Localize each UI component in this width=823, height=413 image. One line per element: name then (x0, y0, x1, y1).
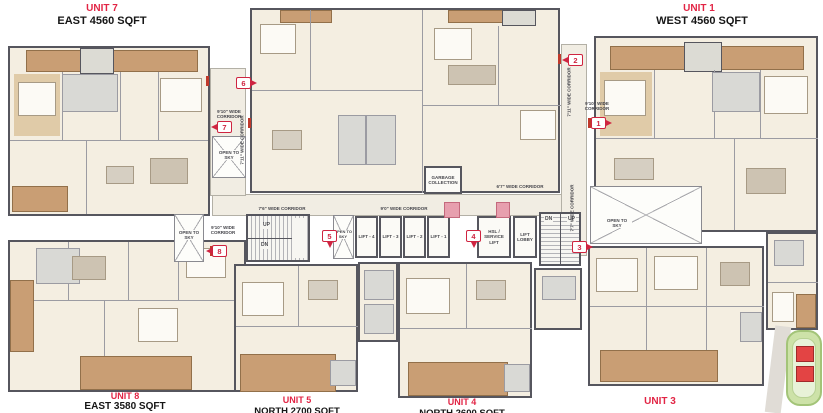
floor-plan: GARBAGE COLLECTION LIFT - 4 LIFT - 3 LIF… (0, 0, 823, 413)
arrow-right-icon (606, 120, 612, 126)
duct-block (684, 42, 722, 72)
wall-partition (104, 300, 105, 356)
arrow-down-icon (471, 242, 477, 248)
corridor-label: 7'6" WIDE CORRIDOR (259, 206, 306, 211)
bathroom (330, 360, 356, 386)
arrow-down-icon (327, 242, 333, 248)
unit3-plan (588, 246, 764, 386)
lift-3-label: LIFT - 3 (383, 234, 399, 239)
unit5-plan (234, 264, 358, 392)
wall-partition (590, 306, 764, 307)
unit1-area: WEST 4560 SQFT (656, 15, 748, 27)
service-duct (444, 202, 460, 218)
sofa (308, 280, 338, 300)
door-accent (558, 54, 561, 64)
lift-2-label: LIFT - 2 (407, 234, 423, 239)
bed (406, 278, 450, 314)
sofa (614, 158, 654, 180)
bed (138, 308, 178, 342)
wall-partition (120, 72, 121, 140)
unit8-plan (8, 240, 246, 392)
bed (242, 282, 284, 316)
deck-balcony (12, 186, 68, 212)
dining-table (746, 168, 786, 194)
entry-marker-7: 7 (211, 121, 232, 133)
unit7-name: UNIT 7 (86, 3, 118, 14)
wall-partition (654, 70, 655, 138)
unit7-area: EAST 4560 SQFT (57, 15, 146, 27)
garbage-room: GARBAGE COLLECTION (424, 166, 462, 194)
bathroom (712, 72, 760, 112)
bathroom (504, 364, 530, 392)
lift-1: LIFT - 1 (427, 216, 450, 258)
entry-marker-6-badge: 6 (236, 77, 251, 89)
wall-partition (760, 70, 761, 138)
stair-divider (248, 238, 292, 239)
wall-partition (706, 248, 707, 350)
door-accent (206, 76, 209, 86)
entry-marker-7-badge: 7 (217, 121, 232, 133)
mid-room-annex (534, 268, 582, 330)
bathroom (62, 74, 118, 112)
wall-partition (158, 72, 159, 140)
garbage-room-label: GARBAGE COLLECTION (426, 175, 460, 185)
corridor-label: 9'10" WIDE CORRIDOR (207, 225, 239, 235)
sofa (476, 280, 506, 300)
bed (160, 78, 202, 112)
deck-balcony (240, 354, 336, 392)
wall-partition (236, 326, 358, 327)
wall-partition (466, 264, 467, 328)
unit3-name: UNIT 3 (644, 396, 676, 407)
sofa (106, 166, 134, 184)
wall-partition (252, 90, 422, 91)
corridor-label: 6'7" WIDE CORRIDOR (497, 184, 544, 189)
deck-balcony (280, 10, 332, 23)
entry-marker-8: 8 (206, 245, 227, 257)
bed (18, 82, 56, 116)
stair-divider (560, 214, 561, 264)
entry-marker-4-badge: 4 (466, 230, 481, 242)
bed (596, 258, 638, 292)
wall-partition (734, 138, 735, 230)
open-to-sky-shaft (590, 186, 702, 244)
wall-partition (86, 140, 87, 214)
bathroom (740, 312, 762, 342)
key-plan-building (796, 366, 814, 382)
unit4-name: UNIT 4 (448, 397, 477, 407)
service-lift: HSL / SERVICE LIFT (477, 216, 511, 258)
corridor-main (212, 194, 580, 216)
bathroom (364, 304, 394, 334)
key-plan-building (796, 346, 814, 362)
wall-partition (128, 242, 129, 300)
bed (764, 76, 808, 114)
dining-table (150, 158, 188, 184)
deck-balcony (448, 10, 510, 23)
staircase-left: UP DN (246, 214, 310, 262)
wall-partition (400, 328, 532, 329)
unit4-area: NORTH 2600 SQFT (419, 408, 505, 413)
stair-up-label: UP (262, 223, 271, 229)
dining-table (720, 262, 750, 286)
stair-dn-label: DN (260, 243, 269, 249)
open-to-sky-label: OPEN TO SKY (178, 230, 200, 240)
unit7-plan (8, 46, 210, 216)
wall-partition (34, 300, 246, 301)
entry-marker-2-badge: 2 (568, 54, 583, 66)
stair-dn-label: DN (544, 217, 553, 223)
entry-marker-5-badge: 5 (322, 230, 337, 242)
wall-partition (422, 10, 423, 193)
service-duct (496, 202, 510, 218)
key-plan-site (786, 330, 822, 406)
lift-2: LIFT - 2 (403, 216, 426, 258)
entry-marker-5: 5 (322, 230, 337, 248)
open-to-sky-label: OPEN TO SKY (216, 150, 242, 160)
east-room-annex (766, 232, 818, 330)
deck-balcony (796, 294, 816, 328)
lift-1-label: LIFT - 1 (431, 234, 447, 239)
stair-landing (292, 218, 306, 258)
corridor-label: 9'0" WIDE CORRIDOR (381, 206, 428, 211)
unit1-name: UNIT 1 (683, 3, 715, 14)
bed (654, 256, 698, 290)
unit5-name: UNIT 5 (283, 395, 312, 405)
mid-units-plan (250, 8, 560, 193)
arrow-right-icon (251, 80, 257, 86)
unit8-area: EAST 3580 SQFT (84, 401, 165, 412)
site-key-plan (768, 326, 823, 413)
entry-marker-6: 6 (236, 77, 257, 89)
door-accent (248, 118, 251, 128)
bathroom (364, 270, 394, 300)
corridor-label: 7'11" WIDE CORRIDOR (239, 115, 244, 164)
wall-partition (646, 248, 647, 350)
lift-lobby-label: LIFT LOBBY (516, 232, 534, 242)
staircase-right: DN UP (539, 212, 581, 266)
bed (520, 110, 556, 140)
wall-partition (768, 282, 818, 283)
bed (772, 292, 794, 322)
deck-balcony (80, 356, 192, 390)
entry-marker-8-badge: 8 (212, 245, 227, 257)
service-lift-label: HSL / SERVICE LIFT (481, 229, 507, 245)
dining-table (72, 256, 106, 280)
corridor-label: 7'7" WIDE CORRIDOR (569, 185, 574, 232)
corridor-label: 9'10" WIDE CORRIDOR (581, 101, 613, 111)
wall-partition (498, 26, 499, 105)
bathroom (542, 276, 576, 300)
arrow-right-icon (587, 244, 593, 250)
lift-4-label: LIFT - 4 (359, 234, 375, 239)
deck-balcony (10, 280, 34, 352)
bed (434, 28, 472, 60)
unit4-plan (398, 262, 532, 398)
duct-block (502, 10, 536, 26)
entry-marker-1-badge: 1 (591, 117, 606, 129)
corridor-label: 7'11" WIDE CORRIDOR (566, 67, 571, 116)
bathroom (366, 115, 396, 165)
wall-partition (62, 72, 63, 140)
unit8-name: UNIT 8 (111, 391, 140, 401)
bed (260, 24, 296, 54)
sofa (272, 130, 302, 150)
entry-marker-2: 2 (562, 54, 583, 66)
deck-balcony (408, 362, 508, 396)
entry-marker-1: 1 (591, 117, 612, 129)
entry-marker-4: 4 (466, 230, 481, 248)
wall-partition (298, 266, 299, 326)
lift-4: LIFT - 4 (355, 216, 378, 258)
open-to-sky-label: OPEN TO SKY (602, 218, 632, 228)
lift-lobby: LIFT LOBBY (513, 216, 537, 258)
bathroom (338, 115, 366, 165)
mid-bath-annex (358, 262, 398, 342)
entry-marker-3-badge: 3 (572, 241, 587, 253)
wall-partition (10, 140, 208, 141)
wall-partition (310, 10, 311, 90)
wall-partition (422, 105, 562, 106)
unit5-area: NORTH 2700 SQFT (254, 406, 340, 413)
wall-partition (596, 138, 818, 139)
duct-block (80, 48, 114, 74)
entry-marker-3: 3 (572, 241, 593, 253)
deck-balcony (600, 350, 718, 382)
dining-table (448, 65, 496, 85)
lift-3: LIFT - 3 (379, 216, 402, 258)
bathroom (774, 240, 804, 266)
